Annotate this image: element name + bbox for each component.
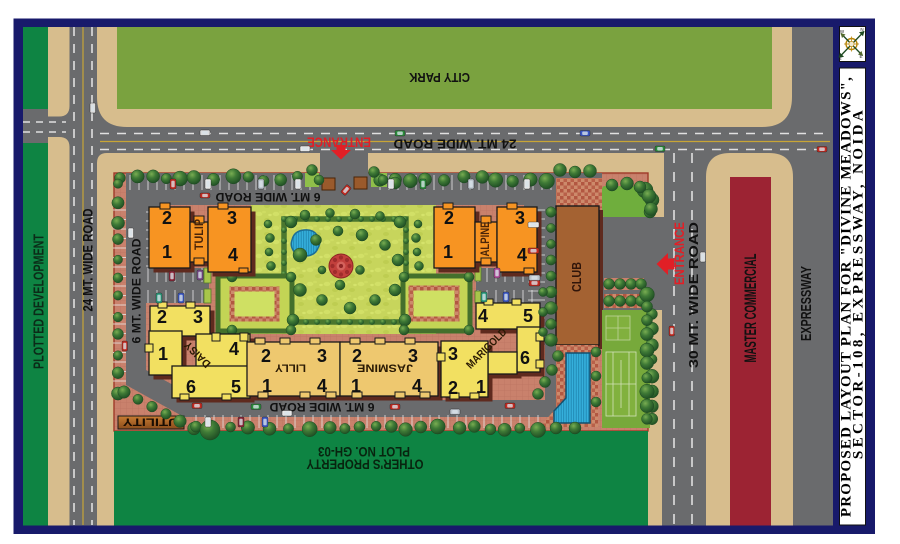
svg-text:S: S — [838, 56, 841, 61]
svg-text:6 MT. WIDE ROAD: 6 MT. WIDE ROAD — [270, 400, 375, 412]
svg-text:24 MT. WIDE ROAD: 24 MT. WIDE ROAD — [80, 209, 96, 312]
svg-text:SECTOR-108, EXPRESSWAY, NOIDA: SECTOR-108, EXPRESSWAY, NOIDA — [851, 107, 867, 459]
svg-text:1: 1 — [262, 376, 272, 396]
svg-text:ALPINE: ALPINE — [478, 222, 492, 257]
svg-text:6: 6 — [186, 377, 196, 397]
svg-text:2: 2 — [162, 208, 172, 228]
svg-text:6: 6 — [520, 348, 530, 368]
svg-text:3: 3 — [317, 346, 327, 366]
svg-text:EXPRESSWAY: EXPRESSWAY — [798, 266, 815, 341]
svg-text:4: 4 — [517, 245, 527, 265]
svg-text:2: 2 — [157, 307, 167, 327]
svg-text:6 MT. WIDE ROAD: 6 MT. WIDE ROAD — [216, 190, 321, 202]
svg-text:5: 5 — [231, 377, 241, 397]
svg-text:OTHER'S PROPERTY: OTHER'S PROPERTY — [307, 457, 424, 472]
svg-text:3: 3 — [227, 208, 237, 228]
svg-text:4: 4 — [228, 245, 238, 265]
svg-text:LILLY: LILLY — [274, 362, 306, 374]
svg-text:3: 3 — [515, 208, 525, 228]
svg-text:4: 4 — [478, 306, 488, 326]
svg-text:1: 1 — [443, 242, 453, 262]
svg-text:5: 5 — [523, 306, 533, 326]
svg-text:N: N — [860, 27, 863, 32]
svg-text:ENTRANCE: ENTRANCE — [672, 222, 687, 285]
svg-text:TULIP: TULIP — [192, 219, 206, 250]
svg-text:PLOTTED DEVELOPMENT: PLOTTED DEVELOPMENT — [31, 234, 48, 369]
svg-text:JASMINE: JASMINE — [357, 362, 413, 374]
svg-text:CLUB: CLUB — [570, 262, 584, 292]
svg-text:2: 2 — [444, 208, 454, 228]
svg-text:3: 3 — [193, 307, 203, 327]
svg-text:2: 2 — [448, 378, 458, 398]
svg-text:1: 1 — [162, 242, 172, 262]
svg-text:6 MT. WIDE ROAD: 6 MT. WIDE ROAD — [132, 239, 144, 344]
svg-text:1: 1 — [158, 344, 168, 364]
svg-text:4: 4 — [229, 339, 239, 359]
svg-text:4: 4 — [317, 376, 327, 396]
svg-text:2: 2 — [261, 346, 271, 366]
svg-text:E: E — [859, 54, 862, 59]
svg-text:30 MT. WIDE ROAD: 30 MT. WIDE ROAD — [686, 222, 701, 368]
svg-text:1: 1 — [476, 377, 486, 397]
svg-text:CITY PARK: CITY PARK — [409, 70, 470, 84]
svg-text:3: 3 — [448, 344, 458, 364]
svg-text:24 MT. WIDE ROAD: 24 MT. WIDE ROAD — [394, 137, 517, 152]
svg-text:1: 1 — [351, 376, 361, 396]
svg-text:MASTER COMMERCIAL: MASTER COMMERCIAL — [741, 254, 760, 363]
svg-text:4: 4 — [412, 376, 422, 396]
